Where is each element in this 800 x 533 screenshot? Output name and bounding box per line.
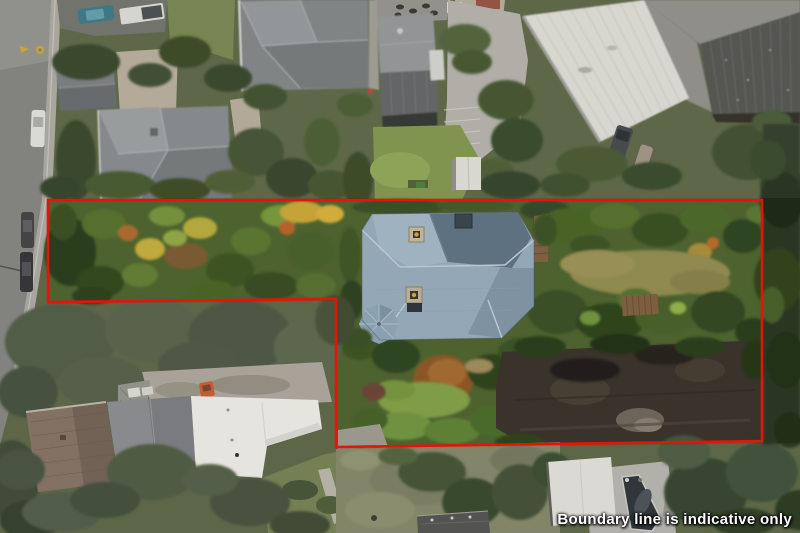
garden-deck — [621, 294, 658, 316]
aerial-photo-canvas — [0, 0, 800, 533]
dark-ground-area — [495, 334, 769, 450]
light-wash-top — [0, 0, 800, 198]
aerial-photo: Boundary line is indicative only — [0, 0, 800, 533]
boundary-disclaimer-text: Boundary line is indicative only — [557, 511, 792, 528]
